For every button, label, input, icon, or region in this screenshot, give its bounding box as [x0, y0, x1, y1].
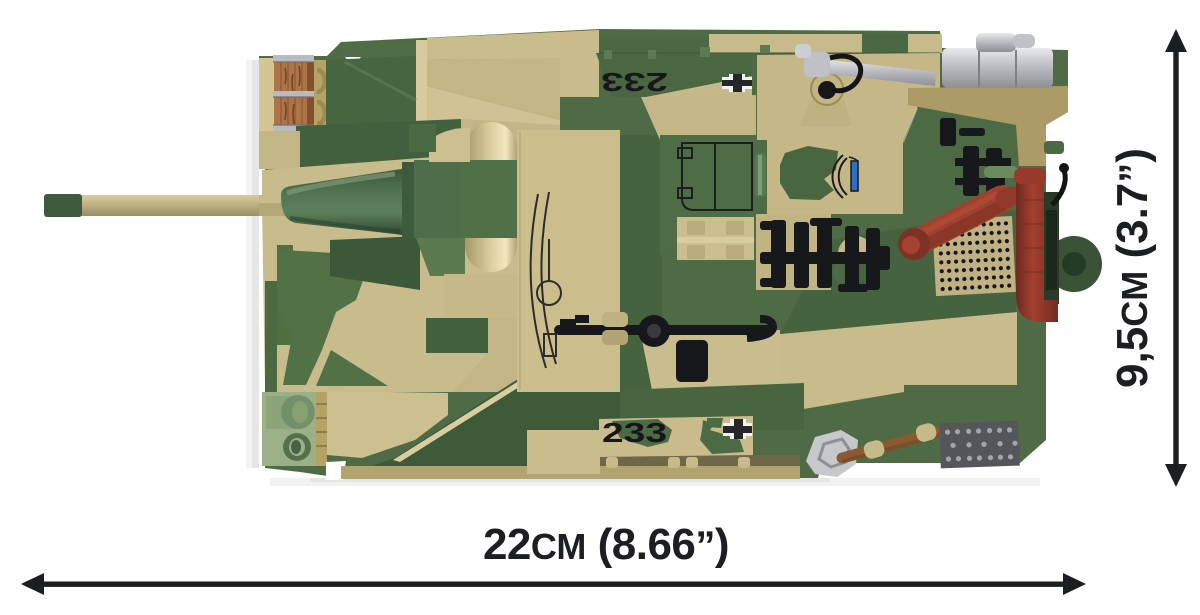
svg-text:22CM (8.66”): 22CM (8.66”): [483, 520, 729, 569]
svg-text:233: 233: [601, 67, 668, 97]
svg-text:9,5CM (3.7”): 9,5CM (3.7”): [1108, 148, 1157, 388]
svg-text:233: 233: [602, 417, 667, 448]
